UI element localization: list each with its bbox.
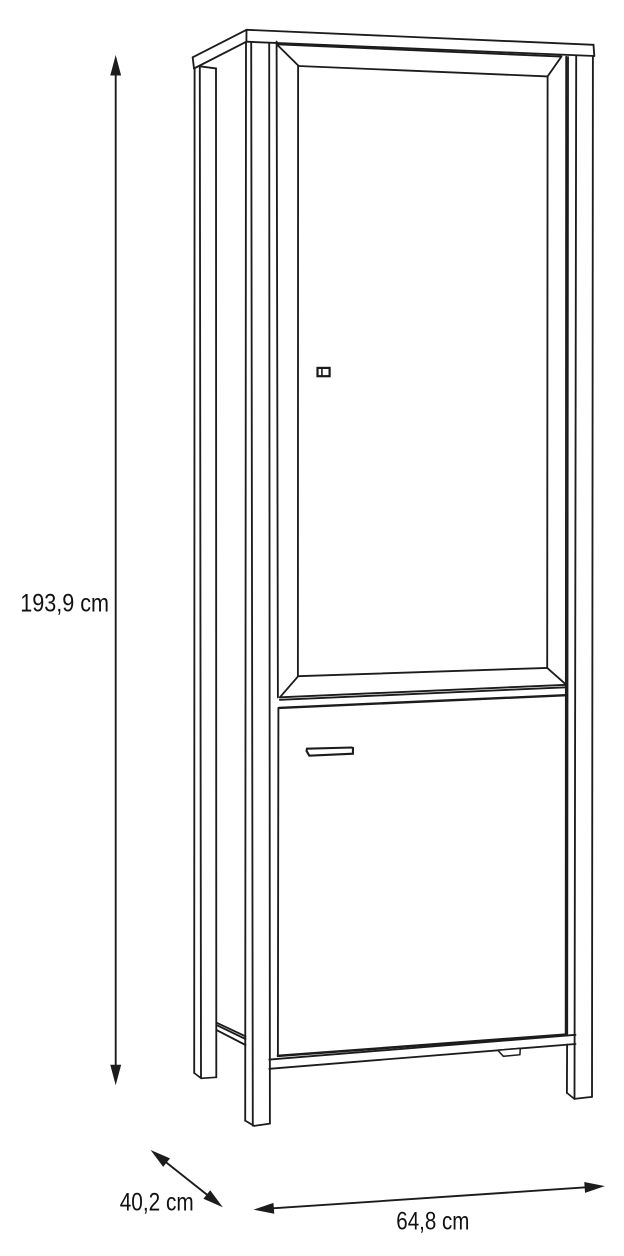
svg-text:193,9 cm: 193,9 cm [20, 591, 109, 618]
svg-text:64,8 cm: 64,8 cm [396, 1209, 469, 1236]
svg-text:40,2 cm: 40,2 cm [120, 1190, 194, 1217]
